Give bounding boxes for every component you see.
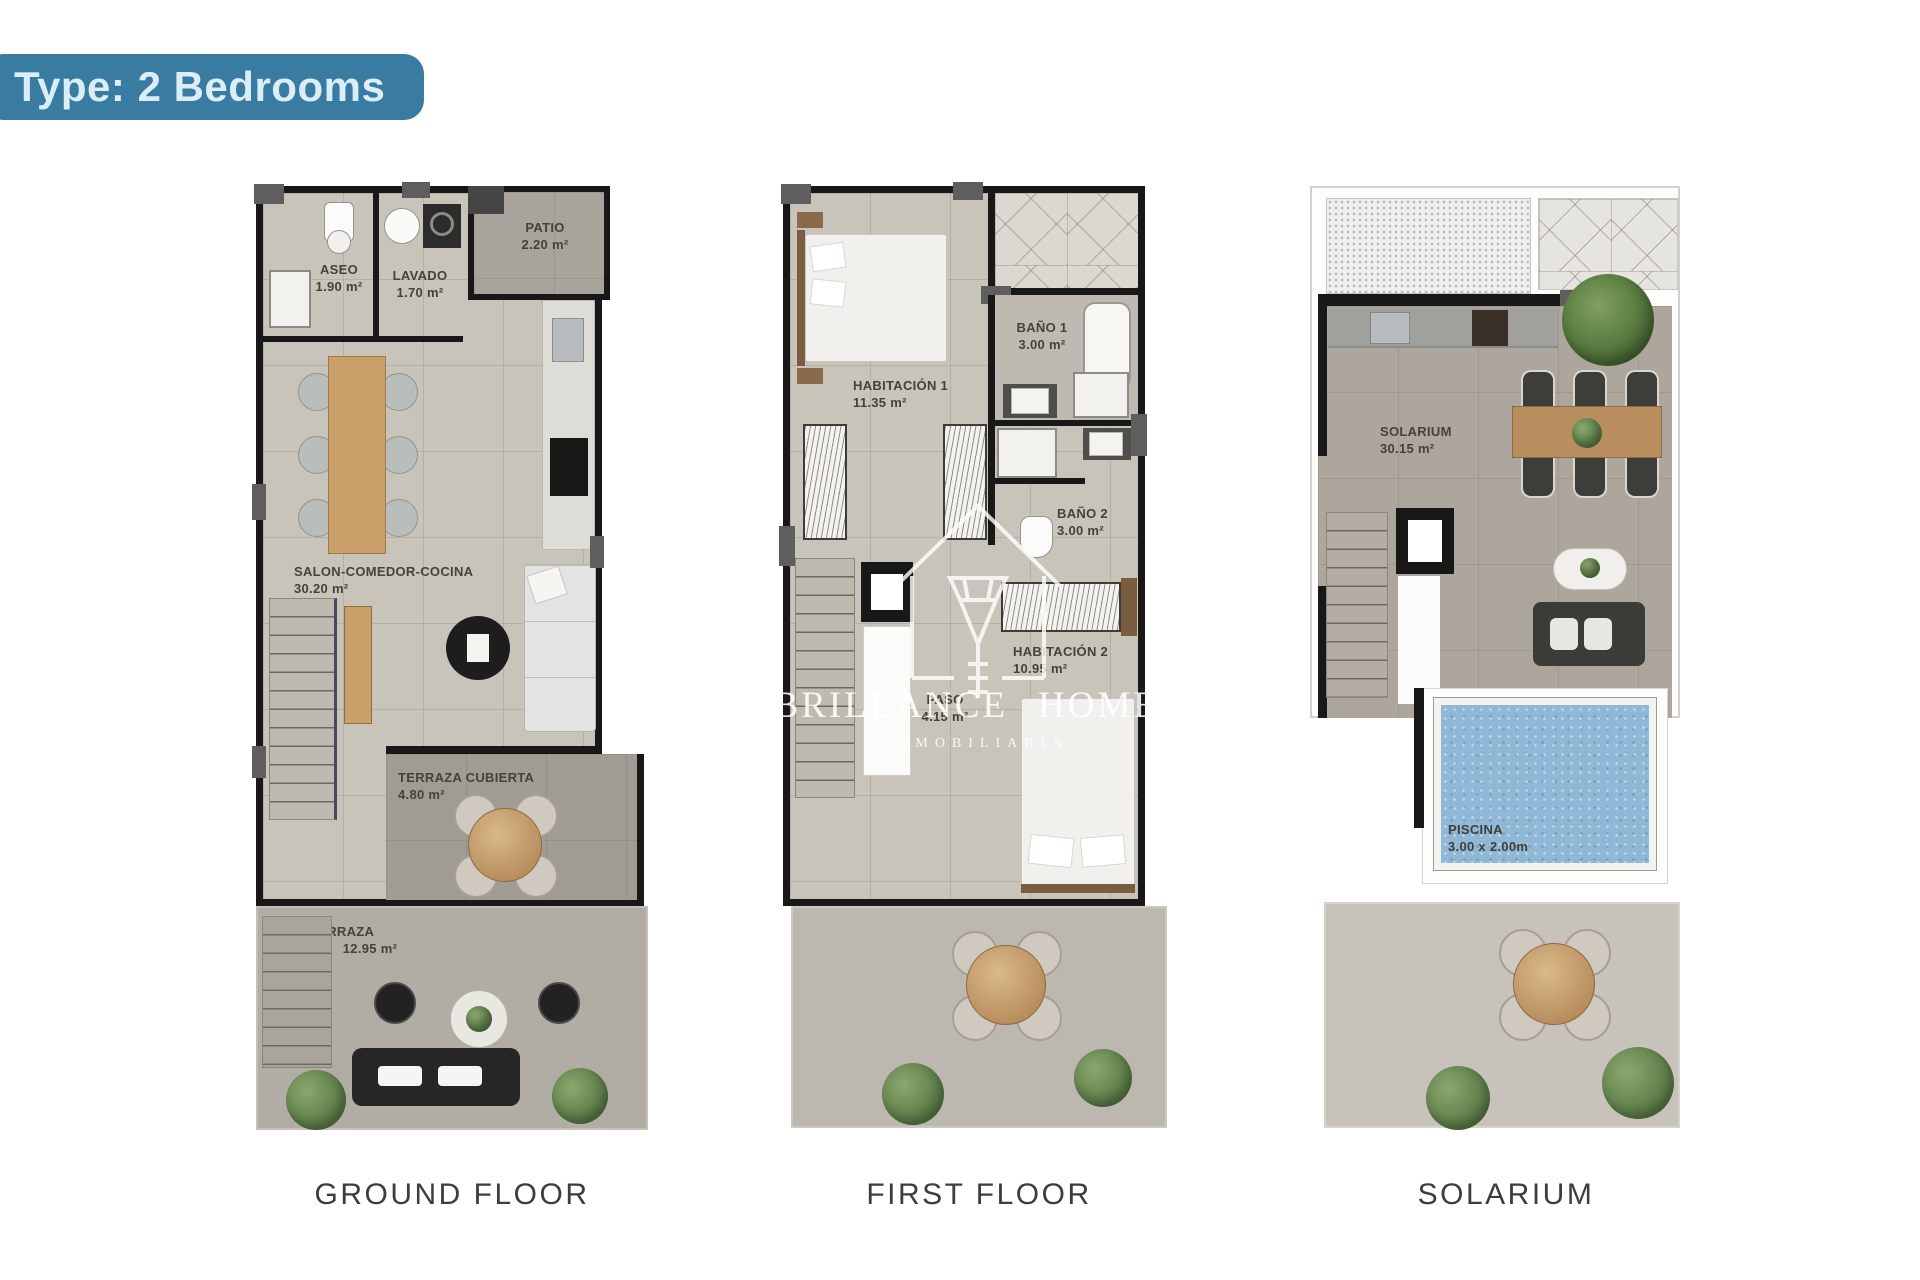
plant-icon [882, 1063, 944, 1125]
plant-icon [286, 1070, 346, 1130]
caption-ground-floor: GROUND FLOOR [256, 1178, 648, 1212]
watermark-subtitle: INMOBILIARIA [793, 736, 1163, 752]
room-area: 1.70 m² [376, 285, 464, 302]
bbq-icon [1472, 310, 1508, 346]
watermark-brand-line2: HOMES [1038, 684, 1183, 727]
sink-icon [1011, 388, 1049, 414]
patio-void-area [988, 193, 1138, 295]
pillow-icon [809, 242, 846, 272]
wall-post [252, 484, 266, 520]
wall [1318, 306, 1327, 456]
room-name: HABITACIÓN 1 [853, 378, 963, 395]
sofa-cushion-icon [1550, 618, 1578, 650]
room-name: PATIO [492, 220, 598, 237]
room-label-lavado: LAVADO 1.70 m² [376, 268, 464, 302]
pillow-icon [1028, 834, 1075, 868]
pillow-icon [810, 278, 847, 307]
wall-post [590, 536, 604, 568]
bed-headboard-icon [797, 230, 805, 366]
outdoor-counter [1328, 308, 1558, 348]
dining-table-icon [328, 356, 386, 554]
wall [263, 336, 463, 342]
plant-icon [1580, 558, 1600, 578]
room-label-bano1: BAÑO 1 3.00 m² [1001, 320, 1083, 354]
room-area: 30.15 m² [1380, 441, 1490, 458]
tree-icon [1562, 274, 1654, 366]
room-area: 2.20 m² [492, 237, 598, 254]
wall-post [254, 184, 284, 204]
cooktop-icon [550, 438, 588, 496]
toilet-seat-icon [327, 230, 351, 254]
kitchen-sink-icon [552, 318, 584, 362]
watermark-brand: BRILLANCE HOMES [793, 684, 1163, 727]
wall [1414, 688, 1424, 828]
sideboard-icon [344, 606, 372, 724]
wall-post [779, 526, 795, 566]
stairs-icon [795, 558, 855, 798]
pillow-icon [1080, 834, 1126, 868]
plant-icon [1074, 1049, 1132, 1107]
plant-icon [1572, 418, 1602, 448]
round-table-icon [966, 945, 1046, 1025]
ground-floor-plan: ASEO 1.90 m² LAVADO 1.70 m² PATIO 2.20 m… [256, 186, 648, 1130]
round-table-icon [1513, 943, 1595, 1025]
caption-first-floor: FIRST FLOOR [783, 1178, 1175, 1212]
laundry-sink-icon [384, 208, 420, 244]
sofa-cushion-icon [378, 1066, 422, 1086]
stairs-icon [262, 916, 332, 1068]
room-label-aseo: ASEO 1.90 m² [300, 262, 378, 296]
first-floor-plan: HABITACIÓN 1 11.35 m² BAÑO 1 3.00 m² BAÑ… [783, 186, 1175, 1130]
room-name: TERRAZA CUBIERTA [398, 770, 558, 787]
room-name: SALON-COMEDOR-COCINA [294, 564, 529, 581]
wall [386, 746, 602, 754]
watermark-logo-icon [868, 468, 1088, 698]
room-label-salon: SALON-COMEDOR-COCINA 30.20 m² [294, 564, 529, 598]
wall-post [953, 182, 983, 200]
sink-icon [1089, 432, 1123, 456]
solarium-plan: SOLARIUM 30.15 m² PISCINA 3.00 x 2.00m [1310, 186, 1702, 1130]
round-table-icon [468, 808, 542, 882]
room-label-patio: PATIO 2.20 m² [492, 220, 598, 254]
wardrobe-icon [803, 424, 847, 540]
sofa-cushion-icon [438, 1066, 482, 1086]
plant-icon [1426, 1066, 1490, 1130]
caption-solarium: SOLARIUM [1310, 1178, 1702, 1212]
wall-post [781, 184, 811, 204]
washing-machine-drum-icon [430, 212, 454, 236]
stairs-icon [1326, 512, 1388, 698]
coffee-table-tray-icon [467, 634, 489, 662]
room-area: 3.00 x 2.00m [1448, 839, 1568, 856]
plant-icon [466, 1006, 492, 1032]
room-label-solarium: SOLARIUM 30.15 m² [1380, 424, 1490, 458]
type-badge: Type: 2 Bedrooms [0, 54, 424, 120]
room-name: PISCINA [1448, 822, 1568, 839]
bed-headboard-icon [1021, 884, 1135, 893]
sink-icon [1370, 312, 1410, 344]
stair-well [1398, 576, 1440, 704]
room-area: 11.35 m² [853, 395, 963, 412]
nightstand-icon [797, 368, 823, 384]
room-name: LAVADO [376, 268, 464, 285]
stair-void [1408, 520, 1442, 562]
stairs-icon [269, 598, 337, 820]
room-name: ASEO [300, 262, 378, 279]
outdoor-chair-icon [374, 982, 416, 1024]
wall-post [468, 186, 504, 214]
wall-post [402, 182, 430, 198]
room-area: 30.20 m² [294, 581, 529, 598]
wardrobe-side-icon [1121, 578, 1137, 636]
room-area: 3.00 m² [1001, 337, 1083, 354]
plant-icon [552, 1068, 608, 1124]
wall [995, 420, 1138, 426]
room-name: BAÑO 1 [1001, 320, 1083, 337]
wall-post [1131, 414, 1147, 456]
outdoor-chair-icon [538, 982, 580, 1024]
wall [1318, 294, 1568, 306]
wall-post [252, 746, 266, 778]
shower-icon [1073, 372, 1129, 418]
sofa-cushion-icon [1584, 618, 1612, 650]
room-label-habitacion1: HABITACIÓN 1 11.35 m² [853, 378, 963, 412]
nightstand-icon [797, 212, 823, 228]
room-area: 1.90 m² [300, 279, 378, 296]
gravel-area [1326, 198, 1531, 294]
room-label-piscina: PISCINA 3.00 x 2.00m [1448, 822, 1568, 856]
type-badge-label: Type: 2 Bedrooms [14, 63, 385, 111]
room-name: SOLARIUM [1380, 424, 1490, 441]
watermark-brand-line1: BRILLANCE [773, 684, 1008, 727]
plant-icon [1602, 1047, 1674, 1119]
